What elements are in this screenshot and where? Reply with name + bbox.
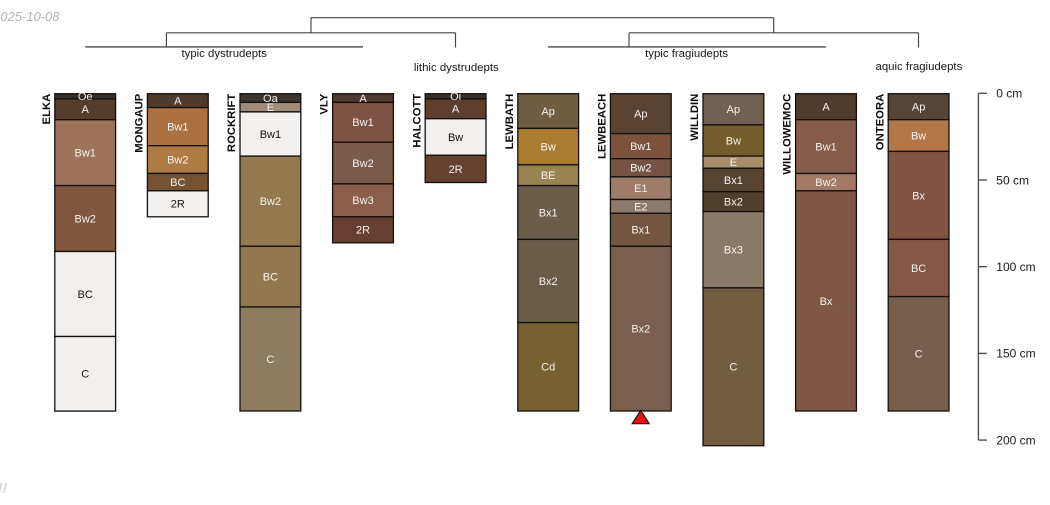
- svg-text:ELKA: ELKA: [41, 94, 53, 125]
- svg-text:C: C: [915, 349, 923, 361]
- svg-text:2R: 2R: [171, 199, 185, 211]
- svg-text:A: A: [174, 96, 182, 108]
- svg-text:Bw2: Bw2: [815, 177, 836, 189]
- svg-text:aquic fragiudepts: aquic fragiudepts: [876, 61, 963, 73]
- svg-text:WILLDIN: WILLDIN: [689, 94, 701, 141]
- svg-text:MONGAUP: MONGAUP: [134, 93, 146, 152]
- svg-text:typic fragiudepts: typic fragiudepts: [645, 48, 728, 60]
- svg-text:Bx2: Bx2: [539, 276, 558, 288]
- svg-text:VLY: VLY: [319, 93, 331, 114]
- svg-text:Bw: Bw: [541, 142, 556, 154]
- svg-text:C: C: [266, 354, 274, 366]
- svg-text:ll: ll: [0, 480, 8, 496]
- svg-text:ROCKRIFT: ROCKRIFT: [226, 94, 238, 152]
- svg-text:Cd: Cd: [541, 362, 555, 374]
- svg-text:100 cm: 100 cm: [996, 260, 1035, 274]
- svg-text:BC: BC: [911, 263, 926, 275]
- svg-text:Bw2: Bw2: [167, 155, 188, 167]
- svg-text:Bw1: Bw1: [630, 141, 651, 153]
- svg-text:0 cm: 0 cm: [996, 87, 1022, 101]
- svg-text:Ap: Ap: [912, 102, 925, 114]
- svg-text:Bw1: Bw1: [352, 117, 373, 129]
- svg-text:lithic dystrudepts: lithic dystrudepts: [414, 62, 499, 74]
- svg-text:50 cm: 50 cm: [996, 173, 1029, 187]
- svg-text:Bw2: Bw2: [630, 163, 651, 175]
- svg-text:Bw1: Bw1: [74, 148, 95, 160]
- svg-text:Bx2: Bx2: [724, 197, 743, 209]
- svg-text:Ap: Ap: [727, 104, 740, 116]
- svg-text:Bx1: Bx1: [631, 225, 650, 237]
- svg-text:Bw3: Bw3: [352, 195, 373, 207]
- svg-text:BC: BC: [170, 177, 185, 189]
- svg-text:Bw1: Bw1: [815, 142, 836, 154]
- svg-text:2025-10-08: 2025-10-08: [0, 9, 60, 24]
- svg-text:Bw2: Bw2: [352, 158, 373, 170]
- svg-text:2R: 2R: [356, 225, 370, 237]
- svg-text:BC: BC: [78, 289, 93, 301]
- svg-text:Bx1: Bx1: [724, 175, 743, 187]
- svg-text:HALCOTT: HALCOTT: [411, 94, 423, 148]
- svg-text:Bw: Bw: [911, 131, 926, 143]
- svg-text:BC: BC: [263, 272, 278, 284]
- svg-text:C: C: [729, 362, 737, 374]
- svg-text:E: E: [730, 157, 737, 169]
- svg-text:Bx1: Bx1: [539, 207, 558, 219]
- svg-text:WILLOWEMOC: WILLOWEMOC: [782, 94, 794, 175]
- svg-text:A: A: [82, 104, 90, 116]
- svg-text:2R: 2R: [449, 164, 463, 176]
- svg-text:Bw2: Bw2: [74, 213, 95, 225]
- svg-text:typic dystrudepts: typic dystrudepts: [181, 48, 267, 60]
- svg-text:150 cm: 150 cm: [996, 347, 1035, 361]
- svg-text:Bw1: Bw1: [167, 122, 188, 134]
- svg-text:A: A: [452, 104, 460, 116]
- svg-text:Bw2: Bw2: [260, 196, 281, 208]
- svg-text:E: E: [267, 102, 274, 114]
- svg-text:ONTEORA: ONTEORA: [874, 94, 886, 151]
- svg-text:A: A: [822, 102, 830, 114]
- svg-text:Bw: Bw: [448, 132, 463, 144]
- svg-text:LEWBATH: LEWBATH: [504, 94, 516, 150]
- svg-text:Bx: Bx: [820, 296, 833, 308]
- svg-text:Ap: Ap: [634, 109, 647, 121]
- svg-text:E1: E1: [634, 183, 647, 195]
- svg-text:Bx3: Bx3: [724, 245, 743, 257]
- svg-text:A: A: [359, 93, 367, 105]
- svg-text:BE: BE: [541, 170, 556, 182]
- svg-text:Bx2: Bx2: [631, 324, 650, 336]
- svg-text:Bx: Bx: [912, 190, 925, 202]
- svg-text:Bw: Bw: [726, 135, 741, 147]
- svg-text:C: C: [81, 369, 89, 381]
- svg-text:Bw1: Bw1: [260, 129, 281, 141]
- svg-text:LEWBEACH: LEWBEACH: [597, 94, 609, 159]
- svg-text:200 cm: 200 cm: [996, 433, 1035, 447]
- svg-text:Ap: Ap: [541, 106, 554, 118]
- svg-text:E2: E2: [634, 201, 647, 213]
